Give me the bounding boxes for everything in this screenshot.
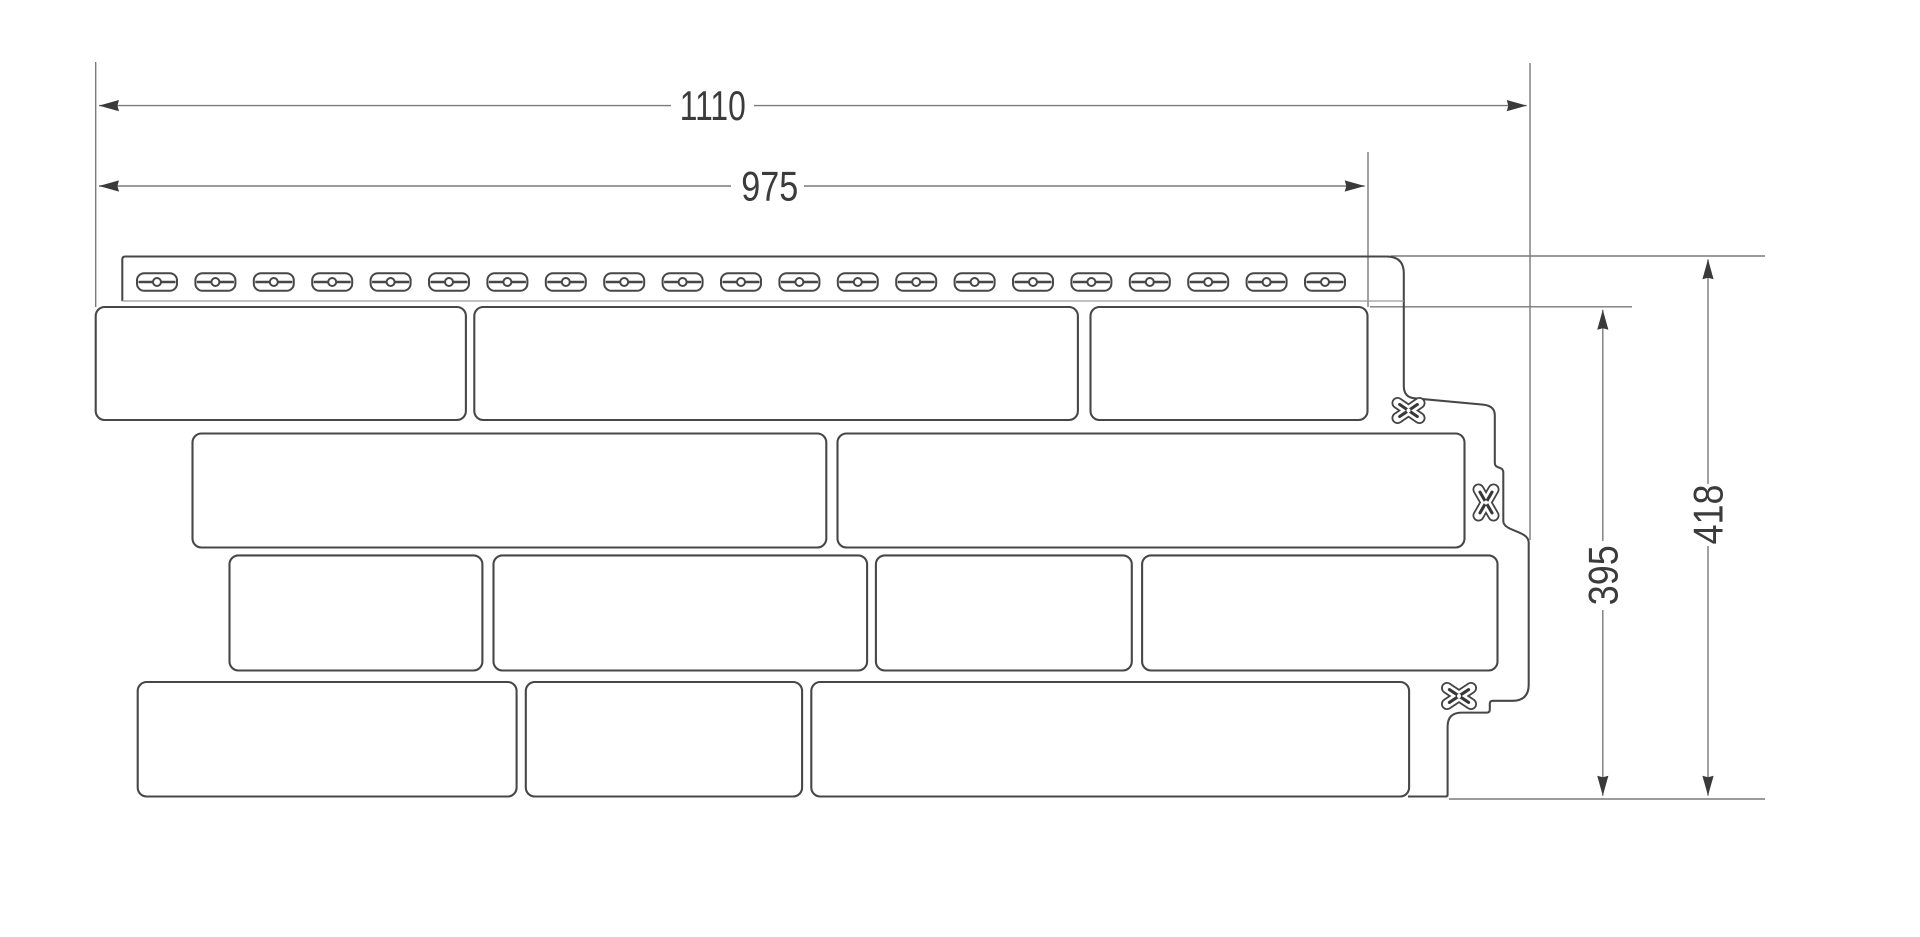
svg-text:975: 975 xyxy=(741,163,798,210)
svg-text:395: 395 xyxy=(1579,545,1626,605)
svg-text:418: 418 xyxy=(1685,485,1732,545)
svg-text:1110: 1110 xyxy=(680,82,746,129)
